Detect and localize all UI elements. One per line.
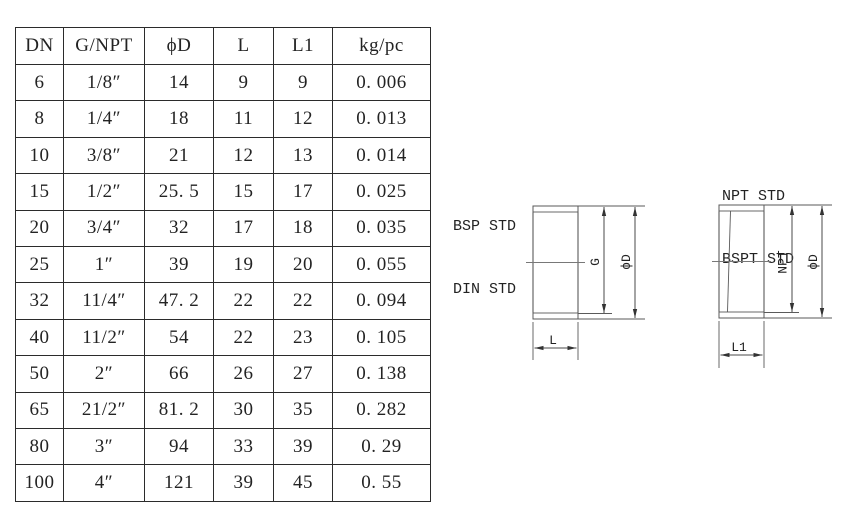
table-cell: 17 (274, 174, 333, 210)
table-row: 203/4″3217180. 035 (16, 210, 431, 246)
table-cell: 19 (214, 247, 274, 283)
table-cell: 65 (16, 392, 64, 428)
od-dimension-label-right: ϕD (806, 254, 821, 270)
table-cell: 45 (274, 465, 333, 502)
table-row: 803″9433390. 29 (16, 429, 431, 465)
table-cell: 25. 5 (145, 174, 214, 210)
table-cell: 94 (145, 429, 214, 465)
table-cell: 12 (274, 101, 333, 137)
table-cell: 0. 006 (333, 65, 431, 101)
table-row: 6521/2″81. 230350. 282 (16, 392, 431, 428)
g-dimension-label: G (588, 258, 603, 266)
table-cell: 33 (214, 429, 274, 465)
table-cell: 3/4″ (64, 210, 145, 246)
table-row: 4011/2″5422230. 105 (16, 319, 431, 355)
table-cell: 100 (16, 465, 64, 502)
table-cell: 0. 105 (333, 319, 431, 355)
table-cell: 22 (214, 283, 274, 319)
table-cell: 0. 014 (333, 137, 431, 173)
table-cell: 8 (16, 101, 64, 137)
table-cell: 20 (274, 247, 333, 283)
table-row: 81/4″1811120. 013 (16, 101, 431, 137)
table-cell: 6 (16, 65, 64, 101)
table-cell: 21/2″ (64, 392, 145, 428)
left-socket-drawing: G ϕD L (526, 206, 645, 360)
od-dimension-label-left: ϕD (619, 254, 634, 270)
table-cell: 121 (145, 465, 214, 502)
table-cell: 23 (274, 319, 333, 355)
table-cell: 0. 55 (333, 465, 431, 502)
table-cell: 20 (16, 210, 64, 246)
table-cell: 0. 138 (333, 356, 431, 392)
right-thread-hatch-top (719, 205, 764, 211)
table-row: 1004″12139450. 55 (16, 465, 431, 502)
spec-table-body: 61/8″14990. 00681/4″1811120. 013103/8″21… (16, 65, 431, 502)
right-socket-drawing: NPT ϕD L1 (712, 205, 832, 368)
table-cell: 3″ (64, 429, 145, 465)
technical-drawings: G ϕD L NPT ϕD L1 (440, 130, 842, 415)
table-cell: 9 (274, 65, 333, 101)
table-cell: 0. 013 (333, 101, 431, 137)
table-cell: 39 (274, 429, 333, 465)
table-cell: 9 (214, 65, 274, 101)
table-cell: 22 (274, 283, 333, 319)
table-cell: 54 (145, 319, 214, 355)
table-cell: 0. 025 (333, 174, 431, 210)
table-cell: 30 (214, 392, 274, 428)
table-cell: 4″ (64, 465, 145, 502)
table-cell: 32 (16, 283, 64, 319)
table-cell: 15 (16, 174, 64, 210)
table-cell: 1/8″ (64, 65, 145, 101)
table-cell: 18 (145, 101, 214, 137)
table-cell: 66 (145, 356, 214, 392)
table-row: 151/2″25. 515170. 025 (16, 174, 431, 210)
table-cell: 0. 035 (333, 210, 431, 246)
table-cell: 40 (16, 319, 64, 355)
spec-sheet: DNG/NPTϕDLL1kg/pc 61/8″14990. 00681/4″18… (0, 0, 842, 528)
table-cell: 22 (214, 319, 274, 355)
table-cell: 39 (214, 465, 274, 502)
table-cell: 21 (145, 137, 214, 173)
table-cell: 25 (16, 247, 64, 283)
spec-table-header-row: DNG/NPTϕDLL1kg/pc (16, 28, 431, 65)
table-cell: 26 (214, 356, 274, 392)
column-header: kg/pc (333, 28, 431, 65)
table-cell: 18 (274, 210, 333, 246)
table-row: 502″6626270. 138 (16, 356, 431, 392)
l-dimension-label: L (549, 333, 557, 348)
table-cell: 32 (145, 210, 214, 246)
table-row: 251″3919200. 055 (16, 247, 431, 283)
table-cell: 10 (16, 137, 64, 173)
table-cell: 14 (145, 65, 214, 101)
table-cell: 17 (214, 210, 274, 246)
column-header: L (214, 28, 274, 65)
column-header: G/NPT (64, 28, 145, 65)
npt-dimension-label: NPT (776, 250, 791, 274)
spec-table: DNG/NPTϕDLL1kg/pc 61/8″14990. 00681/4″18… (15, 27, 431, 502)
table-cell: 47. 2 (145, 283, 214, 319)
table-cell: 39 (145, 247, 214, 283)
table-cell: 12 (214, 137, 274, 173)
table-cell: 80 (16, 429, 64, 465)
table-cell: 3/8″ (64, 137, 145, 173)
table-cell: 50 (16, 356, 64, 392)
table-cell: 27 (274, 356, 333, 392)
table-row: 3211/4″47. 222220. 094 (16, 283, 431, 319)
column-header: L1 (274, 28, 333, 65)
column-header: ϕD (145, 28, 214, 65)
column-header: DN (16, 28, 64, 65)
table-cell: 1/2″ (64, 174, 145, 210)
table-cell: 0. 094 (333, 283, 431, 319)
right-thread-hatch-bottom (719, 312, 764, 318)
l1-dimension-label: L1 (731, 340, 747, 355)
table-cell: 11/2″ (64, 319, 145, 355)
table-cell: 1″ (64, 247, 145, 283)
left-thread-hatch-bottom (533, 313, 578, 319)
table-row: 103/8″2112130. 014 (16, 137, 431, 173)
table-row: 61/8″14990. 006 (16, 65, 431, 101)
table-cell: 0. 282 (333, 392, 431, 428)
table-cell: 15 (214, 174, 274, 210)
left-thread-hatch-top (533, 206, 578, 212)
table-cell: 13 (274, 137, 333, 173)
table-cell: 0. 29 (333, 429, 431, 465)
table-cell: 2″ (64, 356, 145, 392)
table-cell: 11/4″ (64, 283, 145, 319)
table-cell: 81. 2 (145, 392, 214, 428)
table-cell: 11 (214, 101, 274, 137)
table-cell: 1/4″ (64, 101, 145, 137)
table-cell: 35 (274, 392, 333, 428)
table-cell: 0. 055 (333, 247, 431, 283)
